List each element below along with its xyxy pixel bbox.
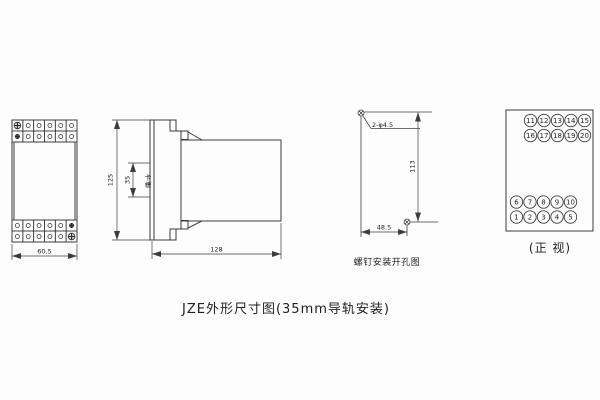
terminal-number: 4 (555, 214, 560, 222)
terminal-cell (23, 120, 34, 131)
side-bottom-tab (170, 229, 176, 240)
terminal-cell (55, 220, 66, 231)
terminal-number: 6 (514, 199, 519, 207)
terminal-cell (66, 120, 77, 131)
terminal-number: 13 (553, 117, 562, 125)
hole-callout: 2-φ4.5 (363, 116, 420, 129)
side-depth-dim-label: 128 (210, 246, 222, 254)
side-top-step (181, 131, 188, 140)
front-body (14, 142, 75, 220)
terminal-circle: 4 (551, 211, 563, 223)
terminal-cell (12, 220, 23, 231)
line-art: 60.5 125 35 (0, 0, 600, 400)
terminal-circle: 17 (538, 129, 550, 141)
terminal-number: 10 (566, 199, 575, 207)
terminal-cell (55, 131, 66, 142)
side-bottom-chamfer (188, 221, 202, 228)
terminal-number: 14 (567, 117, 576, 125)
terminal-number: 3 (541, 214, 545, 222)
terminal-number: 18 (553, 132, 562, 140)
hole-spec-label: 2-φ4.5 (372, 121, 393, 129)
terminal-circle: 1 (510, 211, 522, 223)
terminal-number: 8 (541, 199, 545, 207)
terminal-circle: 14 (565, 114, 577, 126)
terminal-circle: 5 (564, 211, 576, 223)
terminal-number: 2 (528, 214, 532, 222)
drill-width-dim-label: 48.5 (377, 224, 391, 232)
terminal-circle: 6 (510, 196, 522, 208)
terminal-cell (34, 231, 45, 242)
terminal-cell (23, 231, 34, 242)
terminal-number: 5 (568, 214, 572, 222)
terminal-number: 1 (514, 214, 518, 222)
terminal-cell (12, 231, 23, 242)
terminal-number: 11 (526, 117, 535, 125)
terminal-cell (66, 131, 77, 142)
drawing-sheet: 60.5 125 35 (0, 0, 600, 400)
side-height-dim-label: 125 (107, 174, 115, 186)
terminal-cell (45, 131, 56, 142)
front-view: 60.5 (12, 120, 77, 260)
terminal-number: 15 (580, 117, 589, 125)
terminal-circle: 16 (524, 129, 536, 141)
side-depth-dimension: 128 (152, 223, 281, 259)
terminal-cell (34, 120, 45, 131)
terminal-view-caption: (正 视) (503, 241, 597, 255)
terminal-circle: 2 (524, 211, 536, 223)
side-slot-dim-label: 35 (124, 176, 132, 184)
terminal-cell (45, 231, 56, 242)
terminal-number: 12 (540, 117, 549, 125)
side-top-tab (170, 120, 176, 131)
terminal-circle: 10 (564, 196, 576, 208)
front-width-dimension: 60.5 (12, 244, 77, 260)
rail-slot-label: 卡槽 (139, 167, 150, 195)
terminal-cell (45, 120, 56, 131)
terminal-cell (55, 231, 66, 242)
terminal-number: 19 (567, 132, 576, 140)
front-width-dim-label: 60.5 (37, 248, 51, 256)
terminal-front-view: 11 12 13 14 15 16 17 18 19 20 6 7 8 9 10… (506, 110, 593, 231)
terminal-number: 20 (580, 132, 589, 140)
terminal-outline (506, 110, 593, 231)
drill-width-dimension: 48.5 (361, 224, 407, 233)
mounting-hole-icon (358, 110, 364, 116)
drill-height-dim-label: 113 (409, 160, 417, 172)
cross-fastener-icon (15, 134, 20, 139)
side-view: 125 35 128 (107, 120, 282, 259)
page-title: JZE外形尺寸图(35mm导轨安装) (0, 302, 572, 318)
terminal-number: 7 (528, 199, 532, 207)
terminal-cell (34, 220, 45, 231)
screw-head-icon (68, 233, 75, 240)
side-body (181, 140, 281, 221)
drill-view-caption: 螺钉安装开孔图 (343, 258, 431, 269)
terminal-circle: 8 (537, 196, 549, 208)
terminal-number: 17 (540, 132, 549, 140)
screw-head-icon (14, 122, 21, 129)
terminal-circle: 11 (524, 114, 536, 126)
side-top-chamfer (188, 132, 202, 140)
terminal-circle: 19 (565, 129, 577, 141)
terminal-cell (23, 131, 34, 142)
terminal-circle: 20 (578, 129, 590, 141)
front-terminal-block-top (12, 120, 77, 142)
terminal-circle: 18 (551, 129, 563, 141)
terminal-number: 9 (555, 199, 559, 207)
terminal-circle: 12 (538, 114, 550, 126)
terminal-cell (23, 220, 34, 231)
cross-fastener-icon (69, 223, 74, 228)
terminal-cell (45, 220, 56, 231)
terminal-circle: 13 (551, 114, 563, 126)
terminal-circle: 15 (578, 114, 590, 126)
mounting-hole-icon (404, 219, 410, 225)
terminal-number: 16 (526, 132, 535, 140)
terminal-circle: 7 (524, 196, 536, 208)
terminal-cell (55, 120, 66, 131)
terminal-cell (34, 131, 45, 142)
terminal-circle: 3 (537, 211, 549, 223)
drill-hole-view: 2-φ4.5 113 48.5 (358, 110, 438, 237)
front-terminal-block-bottom (12, 220, 77, 242)
terminal-circle: 9 (551, 196, 563, 208)
side-bottom-step (181, 221, 188, 230)
